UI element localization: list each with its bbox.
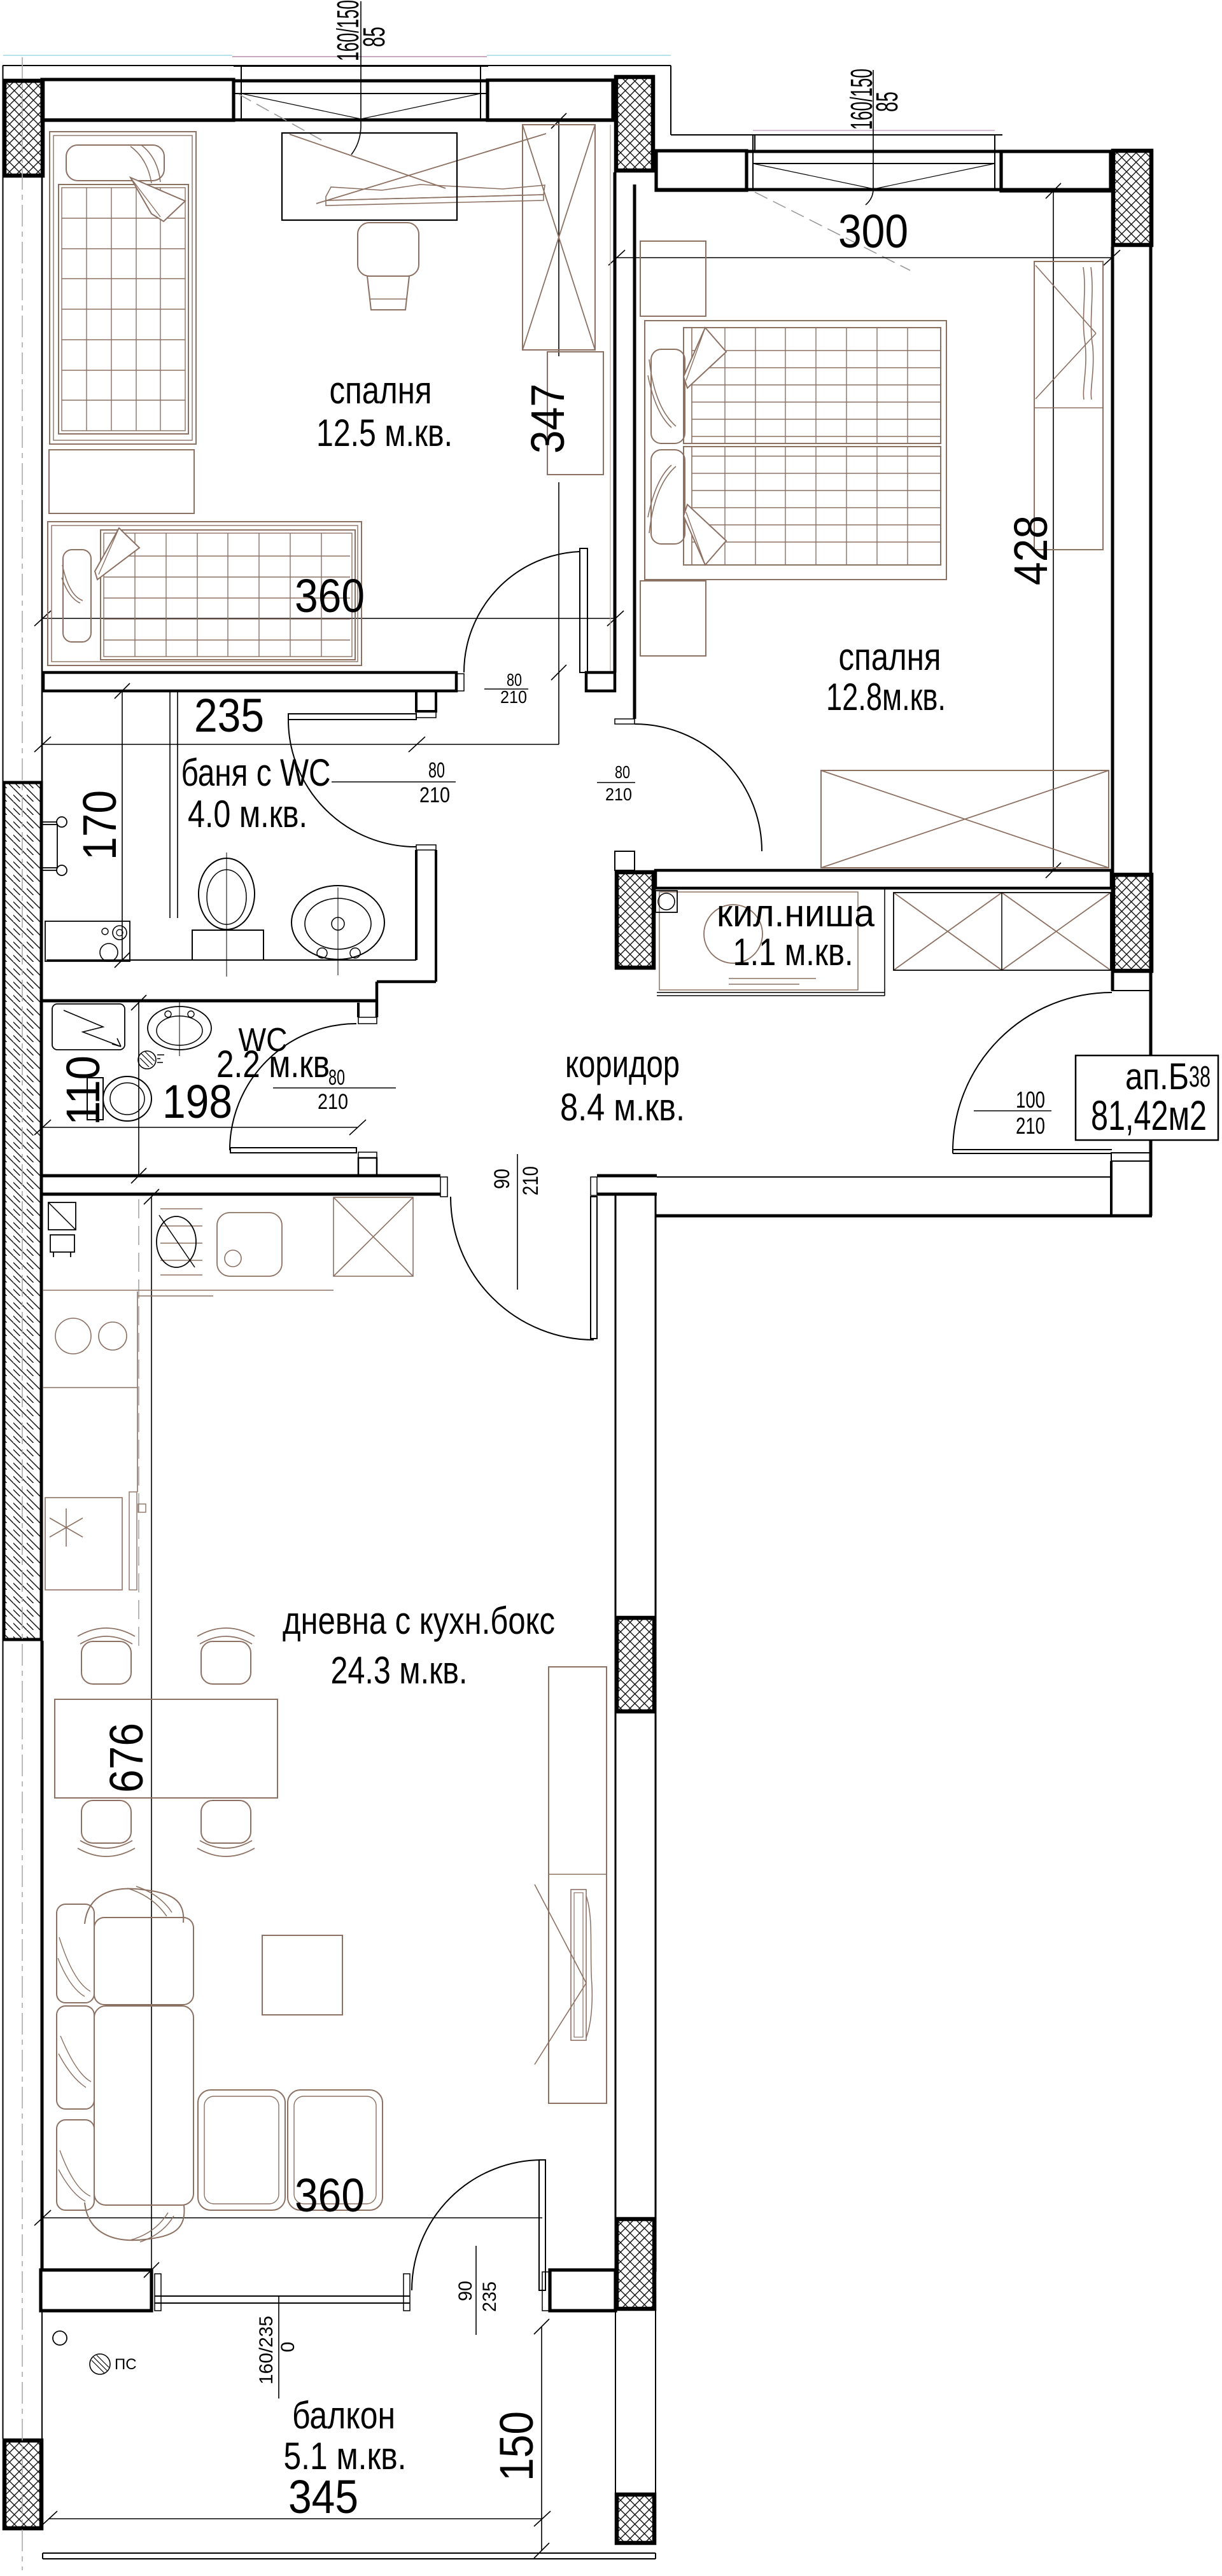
svg-text:235: 235 [479, 2281, 500, 2312]
svg-text:150: 150 [490, 2411, 543, 2481]
svg-text:кил.ниша: кил.ниша [717, 892, 875, 935]
svg-text:85: 85 [358, 27, 391, 47]
svg-text:300: 300 [838, 205, 908, 258]
svg-text:38: 38 [1189, 1060, 1211, 1093]
svg-text:676: 676 [100, 1723, 153, 1793]
svg-text:1.1 м.кв.: 1.1 м.кв. [733, 931, 853, 973]
svg-text:85: 85 [871, 92, 904, 112]
svg-text:коридор: коридор [565, 1043, 680, 1085]
svg-text:ПС: ПС [115, 2356, 137, 2373]
svg-text:100: 100 [1016, 1087, 1045, 1113]
svg-text:80: 80 [428, 758, 445, 783]
svg-text:428: 428 [1004, 515, 1057, 585]
svg-text:4.0 м.кв.: 4.0 м.кв. [188, 793, 307, 835]
svg-text:дневна с кухн.бокс: дневна с кухн.бокс [283, 1599, 555, 1642]
svg-text:160/235: 160/235 [256, 2316, 277, 2385]
svg-text:90: 90 [490, 1169, 514, 1189]
svg-text:8.4 м.кв.: 8.4 м.кв. [560, 1086, 685, 1129]
svg-text:2.2 м.кв: 2.2 м.кв [216, 1043, 330, 1085]
svg-text:210: 210 [500, 687, 527, 707]
svg-text:347: 347 [521, 384, 574, 454]
svg-text:спалня: спалня [330, 369, 432, 412]
svg-text:210: 210 [1016, 1113, 1045, 1139]
svg-text:12.5 м.кв.: 12.5 м.кв. [316, 412, 453, 454]
svg-text:81,42м2: 81,42м2 [1091, 1092, 1207, 1139]
svg-text:баня с WC: баня с WC [181, 751, 331, 794]
svg-text:80: 80 [328, 1066, 345, 1090]
svg-text:210: 210 [419, 783, 450, 807]
svg-text:360: 360 [295, 2169, 365, 2222]
svg-text:80: 80 [615, 762, 630, 782]
svg-text:балкон: балкон [292, 2394, 395, 2437]
svg-text:360: 360 [295, 569, 365, 622]
svg-text:210: 210 [318, 1090, 348, 1114]
svg-text:235: 235 [194, 689, 264, 742]
svg-text:170: 170 [73, 790, 126, 860]
svg-text:210: 210 [519, 1166, 543, 1195]
svg-text:110: 110 [57, 1055, 109, 1125]
svg-text:198: 198 [162, 1075, 232, 1128]
svg-text:спалня: спалня [839, 636, 941, 678]
svg-text:90: 90 [455, 2281, 476, 2301]
svg-text:345: 345 [288, 2470, 358, 2523]
svg-text:24.3 м.кв.: 24.3 м.кв. [331, 1649, 468, 1692]
svg-text:12.8м.кв.: 12.8м.кв. [826, 676, 946, 718]
svg-text:210: 210 [605, 784, 632, 804]
svg-text:0: 0 [277, 2342, 298, 2353]
